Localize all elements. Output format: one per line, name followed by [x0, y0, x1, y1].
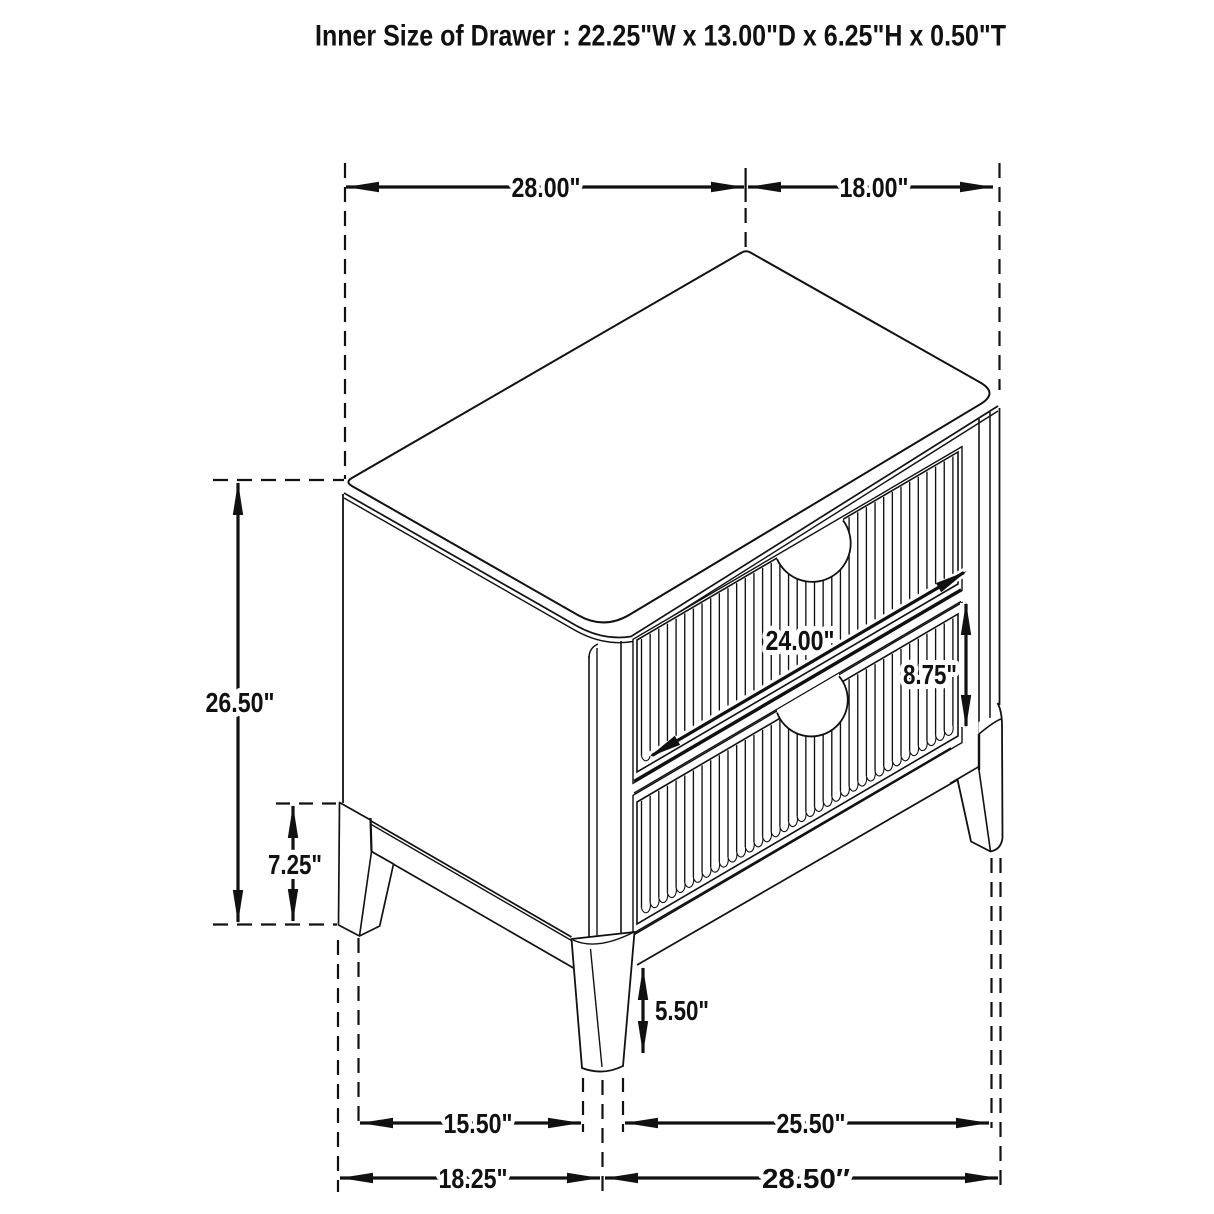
svg-text:18.00": 18.00" [840, 172, 909, 203]
svg-text:7.25": 7.25" [268, 849, 322, 880]
svg-text:8.75": 8.75" [903, 659, 957, 690]
svg-text:18.25": 18.25" [439, 1163, 508, 1194]
svg-text:Inner Size of Drawer : 22.25"W: Inner Size of Drawer : 22.25"W x 13.00"D… [315, 20, 1006, 53]
svg-text:15.50": 15.50" [444, 1108, 513, 1139]
svg-text:5.50": 5.50" [655, 995, 709, 1026]
svg-text:24.00": 24.00" [766, 625, 835, 656]
svg-text:26.50": 26.50" [206, 687, 275, 718]
svg-text:25.50": 25.50" [777, 1108, 846, 1139]
svg-text:28.00": 28.00" [512, 172, 581, 203]
svg-text:28.50″: 28.50″ [762, 1163, 850, 1194]
